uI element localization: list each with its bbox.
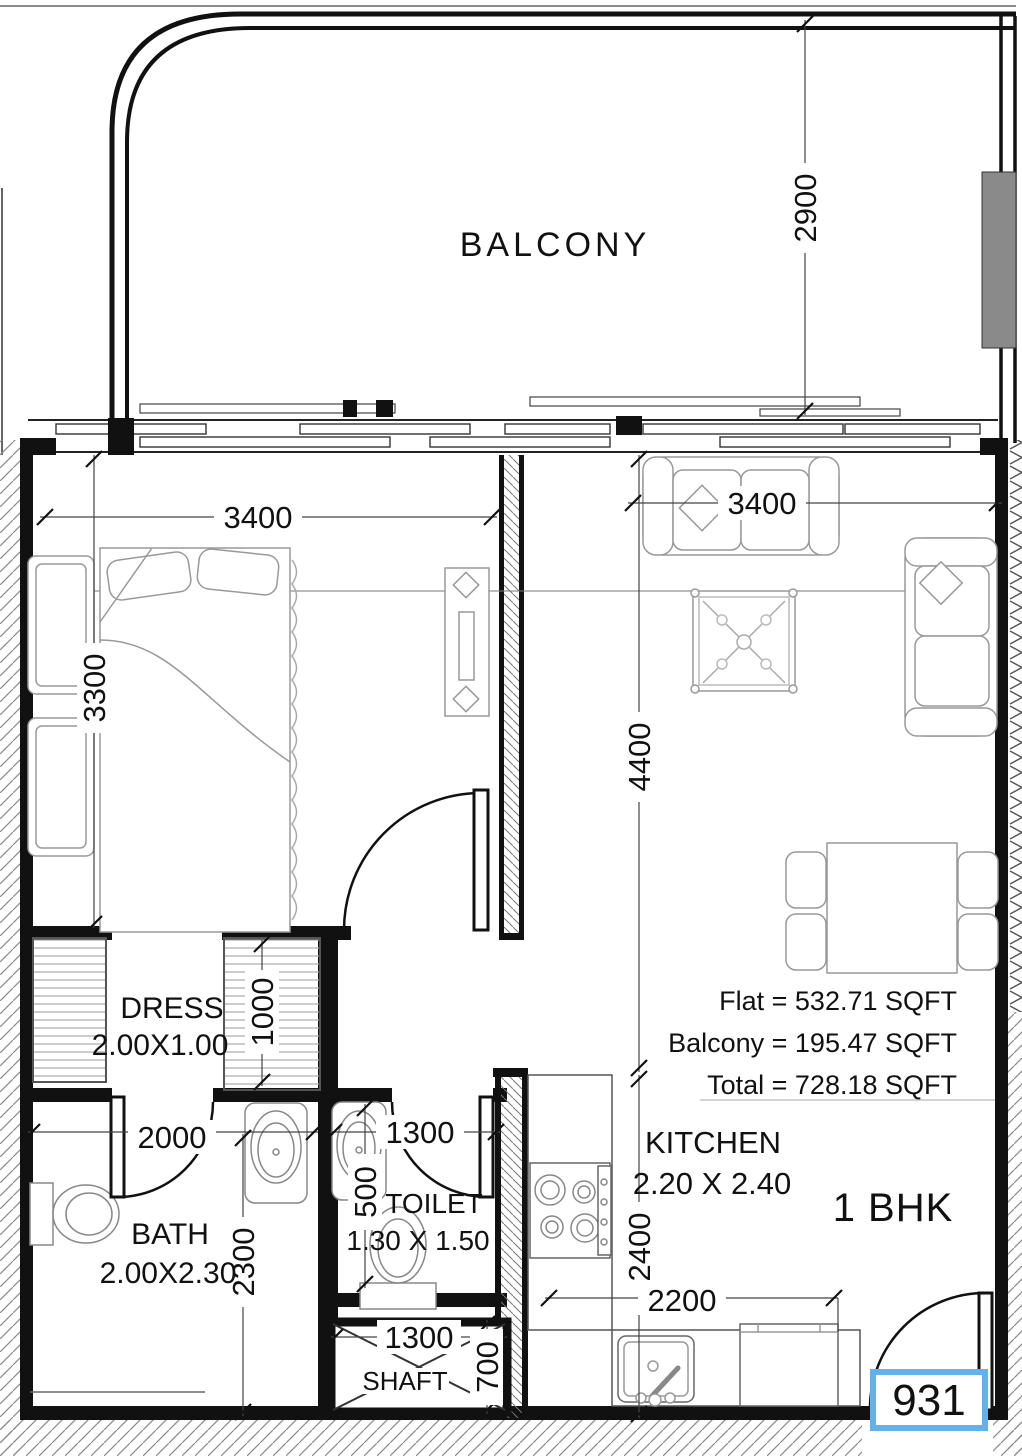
bedroom-door [344,790,488,930]
dim-living-length: 4400 [622,723,657,792]
balcony-column [982,172,1016,348]
right-wall-chevron-hatch [1008,440,1022,1012]
dim-bedroom-width: 3400 [224,500,293,535]
dim-bedroom-length: 3300 [77,654,112,723]
area-summary: Flat = 532.71 SQFT Balcony = 195.47 SQFT… [668,986,957,1100]
dress-size: 2.00X1.00 [92,1029,229,1062]
dining-table [827,843,957,973]
dim-shaft-depth: 700 [470,1341,505,1393]
balcony-parapet-outer [112,14,1016,432]
flat-area-text: Flat = 532.71 SQFT [719,986,957,1016]
dining-chair [958,914,998,970]
balcony-label: BALCONY [460,226,651,264]
stove [530,1163,611,1258]
bed-ruffle [292,560,297,920]
living-furniture [643,457,998,973]
dim-kitchen-length: 2400 [622,1213,657,1282]
dim-living-width: 3400 [728,486,797,521]
divider-wall-cap [499,933,524,940]
unit-number-badge: 931 [873,1372,985,1428]
kitchen-label: KITCHEN [645,1125,781,1160]
carpet [691,589,797,693]
kitchen-size: 2.20 X 2.40 [633,1166,792,1201]
sliding-window-band [20,416,1008,455]
sink [618,1336,694,1406]
dim-toilet-depth: 500 [348,1166,383,1218]
pillow [196,548,280,596]
left-wall-hatch [0,440,20,1456]
unit-type-label: 1 BHK [833,1186,954,1230]
dining-chair [958,852,998,908]
dim-bath-width: 2000 [138,1120,207,1155]
dim-shaft-width: 1300 [385,1320,454,1355]
dining-chair [786,914,826,970]
unit-number-text: 931 [892,1376,965,1425]
dim-dress-depth: 1000 [245,978,280,1047]
dining-set [786,843,998,973]
balcony-area-text: Balcony = 195.47 SQFT [668,1028,957,1058]
floor-plan-page: 2900 3400 3400 3300 4400 1000 2000 2300 … [0,0,1022,1456]
wc-tank [30,1183,53,1245]
wc-tank [360,1283,436,1309]
bath-size: 2.00X2.30 [100,1257,237,1290]
toilet-size: 1.30 X 1.50 [346,1225,489,1256]
shaft-label: SHAFT [362,1366,447,1396]
dining-chair [786,852,826,908]
dress-label: DRESS [120,992,223,1025]
fridge [740,1324,838,1406]
dim-balcony-depth: 2900 [788,174,823,243]
bedroom-furniture [28,548,489,932]
dim-toilet-width: 1300 [386,1115,455,1150]
toilet-label: TOILET [385,1188,483,1219]
floor-plan-canvas: 2900 3400 3400 3300 4400 1000 2000 2300 … [0,0,1022,1456]
dim-kitchen-width: 2200 [648,1283,717,1318]
bath-label: BATH [131,1218,209,1251]
total-area-text: Total = 728.18 SQFT [707,1070,957,1100]
bottom-wall-hatch [0,1420,862,1456]
